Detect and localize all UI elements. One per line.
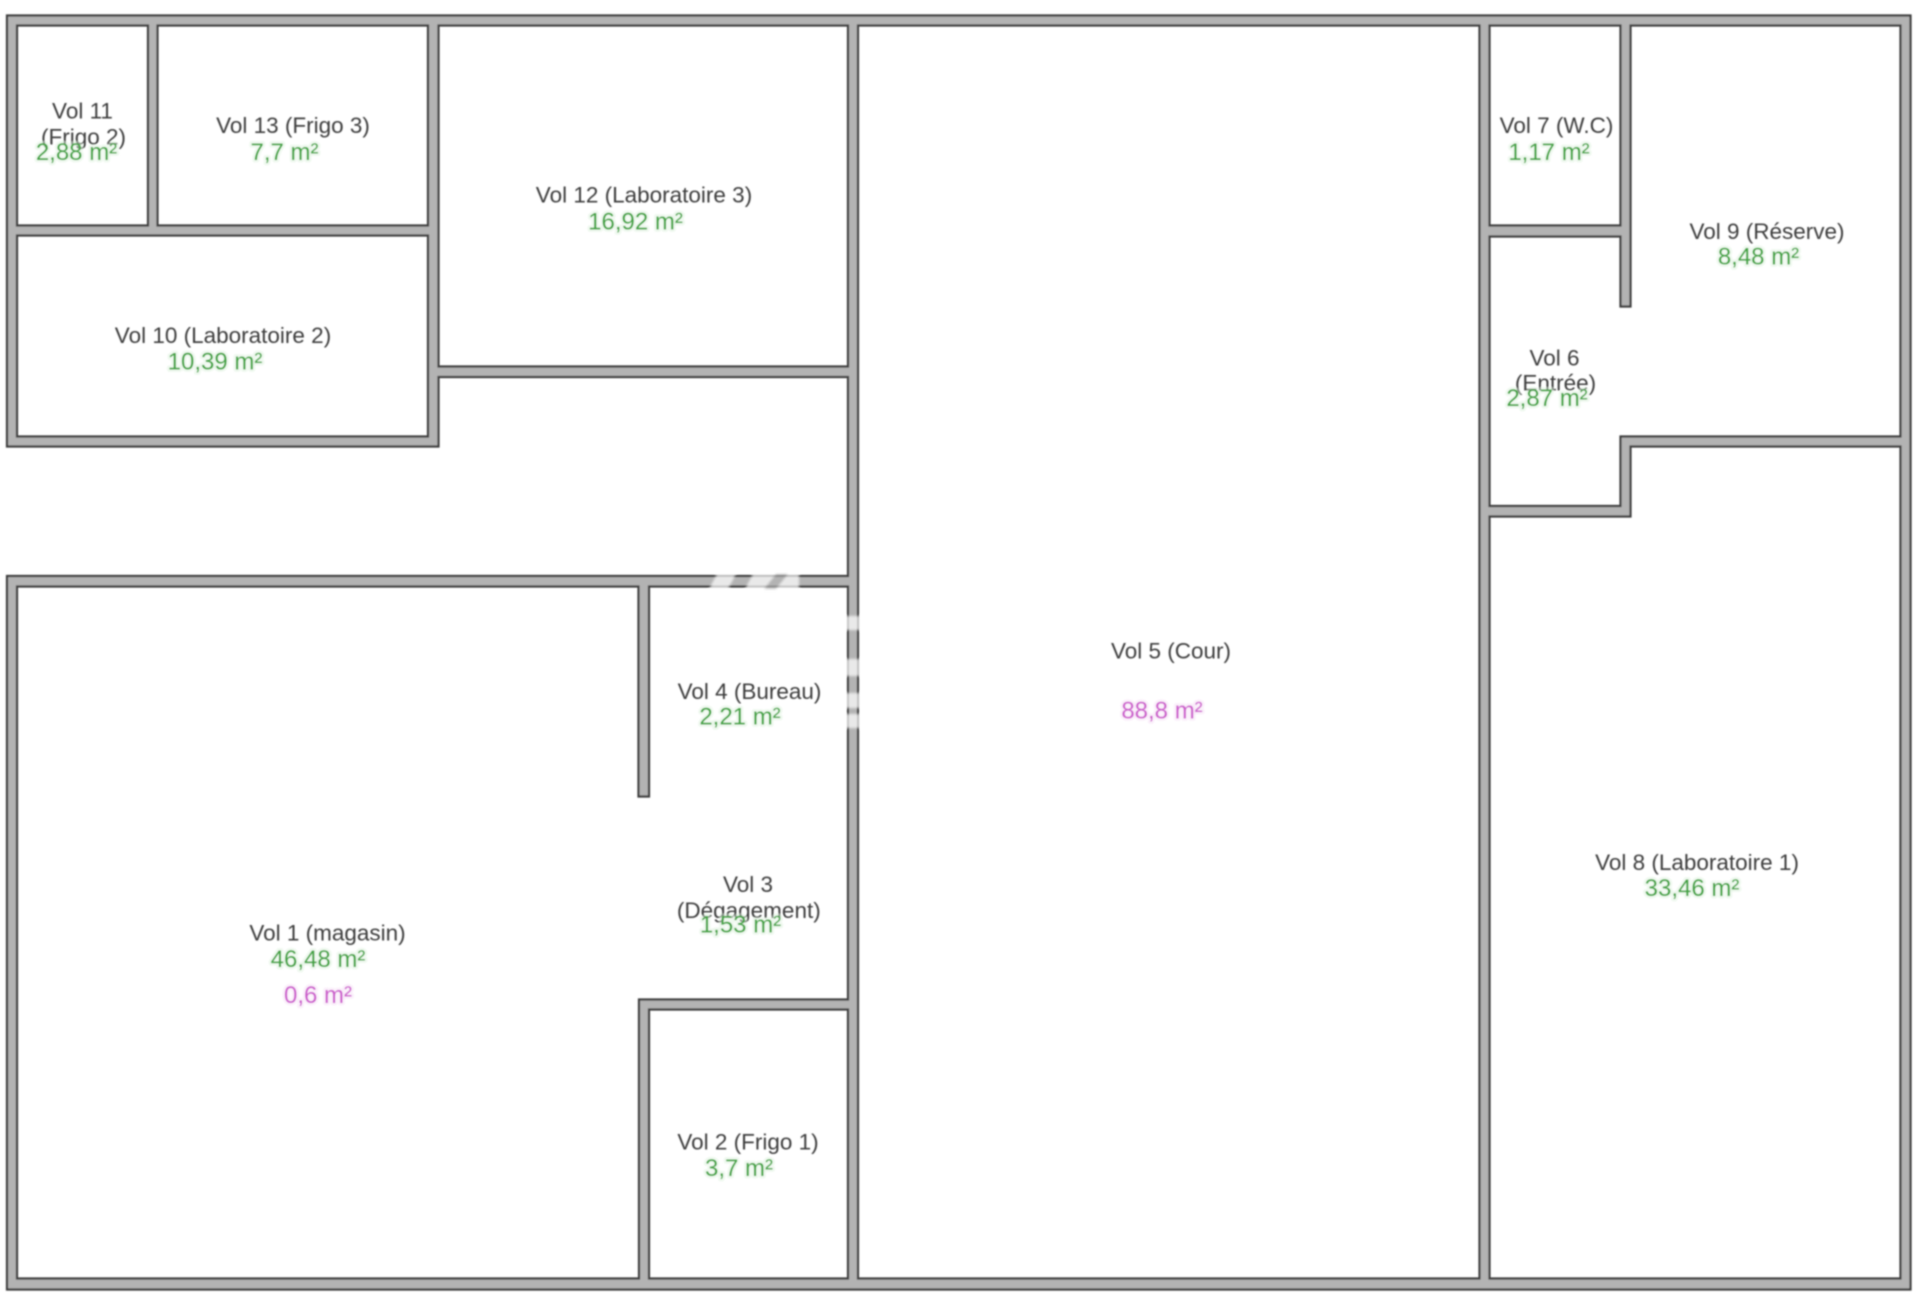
svg-text:3,7 m²: 3,7 m²	[705, 1155, 773, 1182]
svg-text:46,48 m²: 46,48 m²	[271, 946, 366, 973]
svg-text:8,48 m²: 8,48 m²	[1718, 244, 1799, 271]
svg-text:Vol 13 (Frigo 3): Vol 13 (Frigo 3)	[216, 113, 370, 138]
svg-text:Vol 8 (Laboratoire 1): Vol 8 (Laboratoire 1)	[1595, 850, 1799, 875]
svg-text:2,21 m²: 2,21 m²	[699, 704, 780, 731]
svg-text:Vol 12 (Laboratoire 3): Vol 12 (Laboratoire 3)	[536, 183, 752, 208]
svg-text:Vol 4 (Bureau): Vol 4 (Bureau)	[678, 679, 822, 704]
svg-text:88,8 m²: 88,8 m²	[1121, 698, 1202, 725]
svg-text:2,88 m²: 2,88 m²	[36, 139, 117, 166]
svg-text:1,53 m²: 1,53 m²	[700, 912, 781, 939]
svg-text:Vol 5 (Cour): Vol 5 (Cour)	[1111, 639, 1231, 664]
svg-text:Vol 11: Vol 11	[52, 99, 113, 124]
svg-text:Vol 10 (Laboratoire 2): Vol 10 (Laboratoire 2)	[115, 323, 331, 348]
svg-text:Vol 6: Vol 6	[1529, 346, 1579, 371]
svg-text:Vol 3: Vol 3	[723, 872, 773, 897]
svg-text:33,46 m²: 33,46 m²	[1645, 875, 1740, 902]
svg-text:Vol 2 (Frigo 1): Vol 2 (Frigo 1)	[677, 1130, 818, 1155]
svg-text:Vol 9 (Réserve): Vol 9 (Réserve)	[1689, 219, 1844, 244]
svg-text:0,6 m²: 0,6 m²	[284, 982, 352, 1009]
svg-text:1,17 m²: 1,17 m²	[1508, 139, 1589, 166]
svg-text:7,7 m²: 7,7 m²	[250, 139, 318, 166]
svg-text:2,87 m²: 2,87 m²	[1506, 385, 1587, 412]
svg-text:10,39 m²: 10,39 m²	[168, 349, 263, 376]
svg-text:Vol 1 (magasin): Vol 1 (magasin)	[249, 921, 405, 946]
svg-text:16,92 m²: 16,92 m²	[588, 209, 683, 236]
svg-text:Vol 7 (W.C): Vol 7 (W.C)	[1500, 113, 1614, 138]
